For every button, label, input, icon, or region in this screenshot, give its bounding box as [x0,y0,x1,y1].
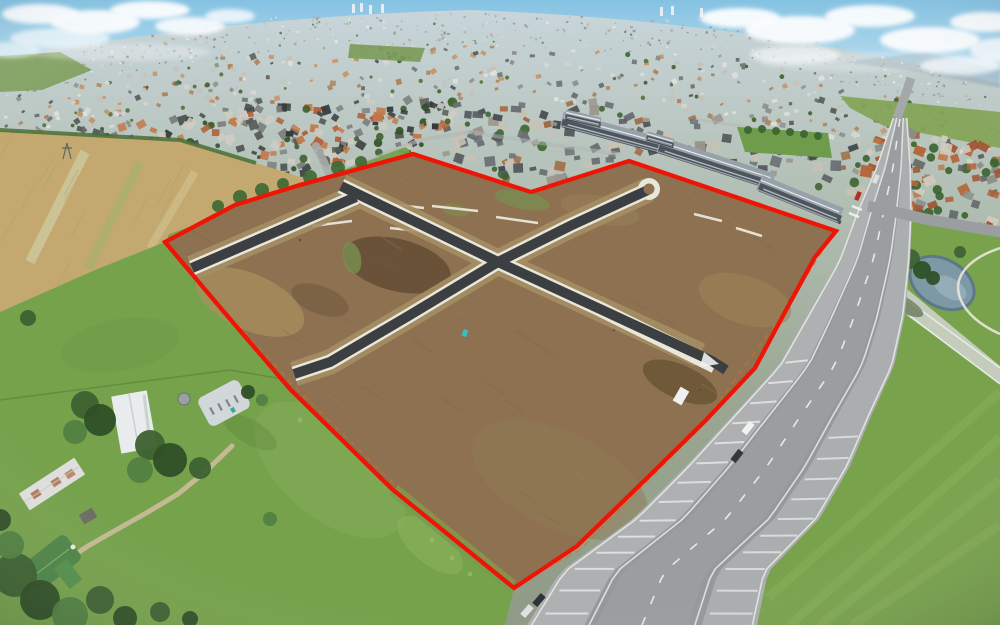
aerial-photo-canvas [0,0,1000,625]
aerial-photo [0,0,1000,625]
lens-vignette [0,0,1000,625]
